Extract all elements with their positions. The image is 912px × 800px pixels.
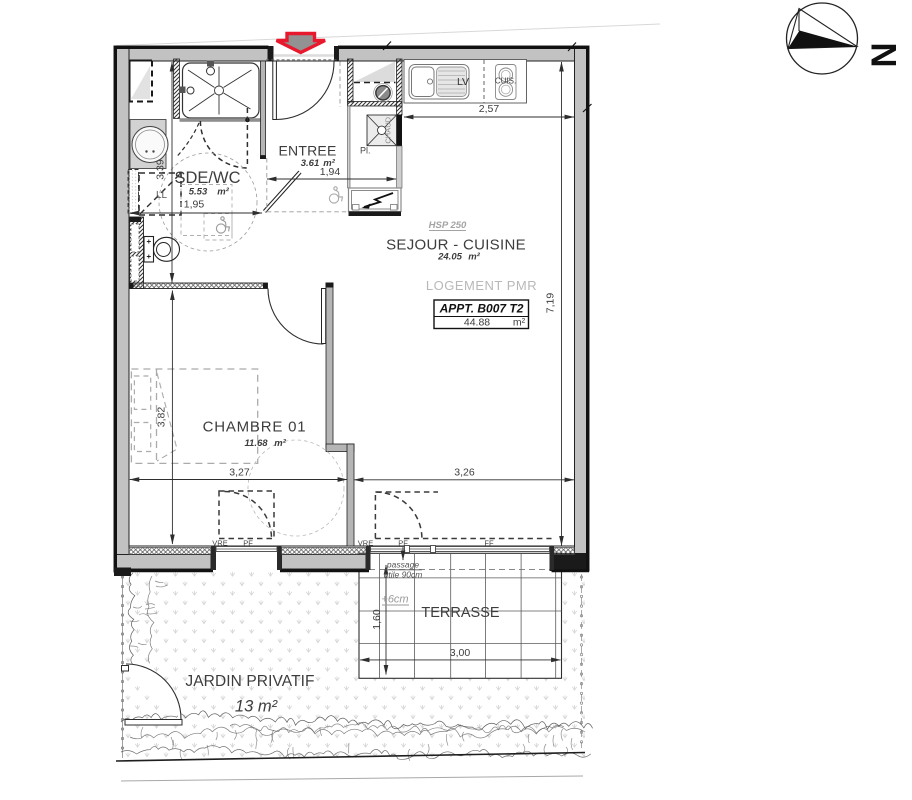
svg-text:passage: passage [386,560,419,570]
svg-text:m²: m² [468,252,480,263]
svg-text:+6cm: +6cm [381,594,408,606]
svg-text:CHAUD: CHAUD [384,116,393,143]
svg-text:24.05: 24.05 [437,252,462,263]
svg-text:2,57: 2,57 [479,103,500,115]
svg-text:5.53: 5.53 [189,187,208,198]
svg-text:SDE/WC: SDE/WC [175,169,241,187]
svg-text:FF: FF [484,539,494,548]
svg-text:TERRASSE: TERRASSE [421,605,499,621]
svg-text:3,26: 3,26 [454,467,475,479]
svg-text:APPT. B007 T2: APPT. B007 T2 [439,302,524,316]
svg-text:utile 90cm: utile 90cm [384,570,423,580]
svg-text:m²: m² [513,317,526,329]
svg-text:VRE: VRE [358,539,373,548]
svg-text:m²: m² [217,187,229,198]
svg-text:1,94: 1,94 [320,166,341,178]
svg-text:PF: PF [398,539,408,548]
svg-text:JARDIN PRIVATIF: JARDIN PRIVATIF [185,673,314,690]
svg-text:VRE: VRE [212,539,227,548]
svg-text:CHAMBRE 01: CHAMBRE 01 [203,419,307,436]
svg-text:N: N [864,42,903,67]
svg-text:LL: LL [156,190,168,201]
svg-text:11.68: 11.68 [244,438,268,449]
svg-text:3,00: 3,00 [450,647,471,659]
svg-text:3,39: 3,39 [155,159,167,180]
svg-text:7,19: 7,19 [545,293,557,314]
svg-text:44.88: 44.88 [464,317,490,329]
svg-text:PF: PF [243,539,253,548]
svg-text:CUIS.: CUIS. [495,77,516,86]
svg-text:HSP 250: HSP 250 [429,220,467,231]
svg-text:LV: LV [457,76,469,88]
svg-text:1,60: 1,60 [371,609,383,630]
svg-text:LOGEMENT PMR: LOGEMENT PMR [426,278,537,293]
svg-text:ENTREE: ENTREE [279,143,337,159]
svg-text:m²: m² [274,438,286,449]
svg-text:3,82: 3,82 [156,407,168,428]
svg-text:3,27: 3,27 [229,467,250,479]
svg-text:3.61: 3.61 [301,158,320,169]
svg-text:1,95: 1,95 [184,199,205,211]
svg-text:13 m²: 13 m² [235,698,278,716]
svg-text:Pl.: Pl. [360,146,371,156]
